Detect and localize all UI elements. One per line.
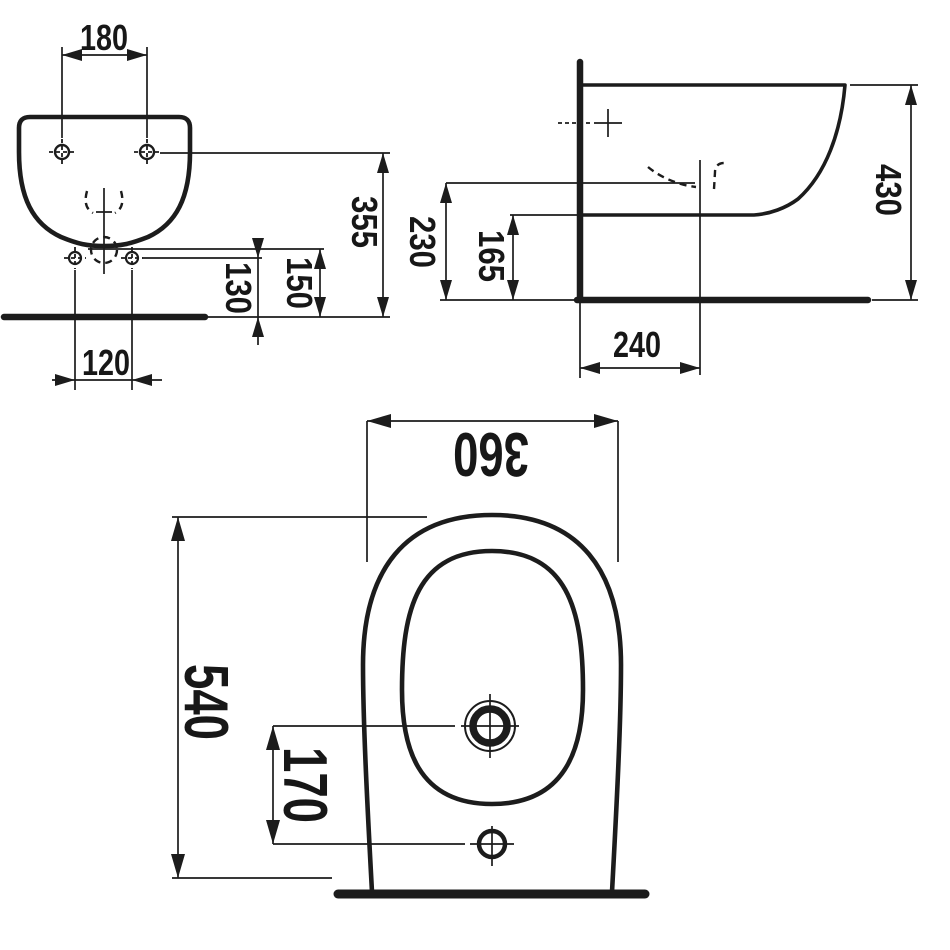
front-dim-side-hole-height-label: 130 [218, 262, 259, 314]
technical-drawing: 180 355 150 130 120 [0, 0, 950, 950]
plan-dim-overall-depth-label: 540 [171, 664, 240, 740]
front-dim-overall-height-label: 355 [344, 196, 385, 248]
side-dim-wall-to-tap-label: 240 [613, 324, 661, 365]
side-dim-overall-height-label: 430 [868, 164, 909, 216]
drawing-canvas: 180 355 150 130 120 [0, 0, 950, 950]
front-dim-wall-hole-spacing-label: 180 [80, 17, 128, 58]
side-dim-underside-height-label: 165 [471, 230, 512, 282]
front-dim-bottom-hole-spacing-label: 120 [82, 342, 130, 383]
plan-dim-hole-offset-label: 170 [270, 747, 339, 823]
side-dim-tap-centre-height-label: 230 [402, 216, 443, 268]
plan-dim-overall-width-label: 360 [453, 419, 529, 488]
front-dim-outlet-height-label: 150 [279, 257, 320, 309]
